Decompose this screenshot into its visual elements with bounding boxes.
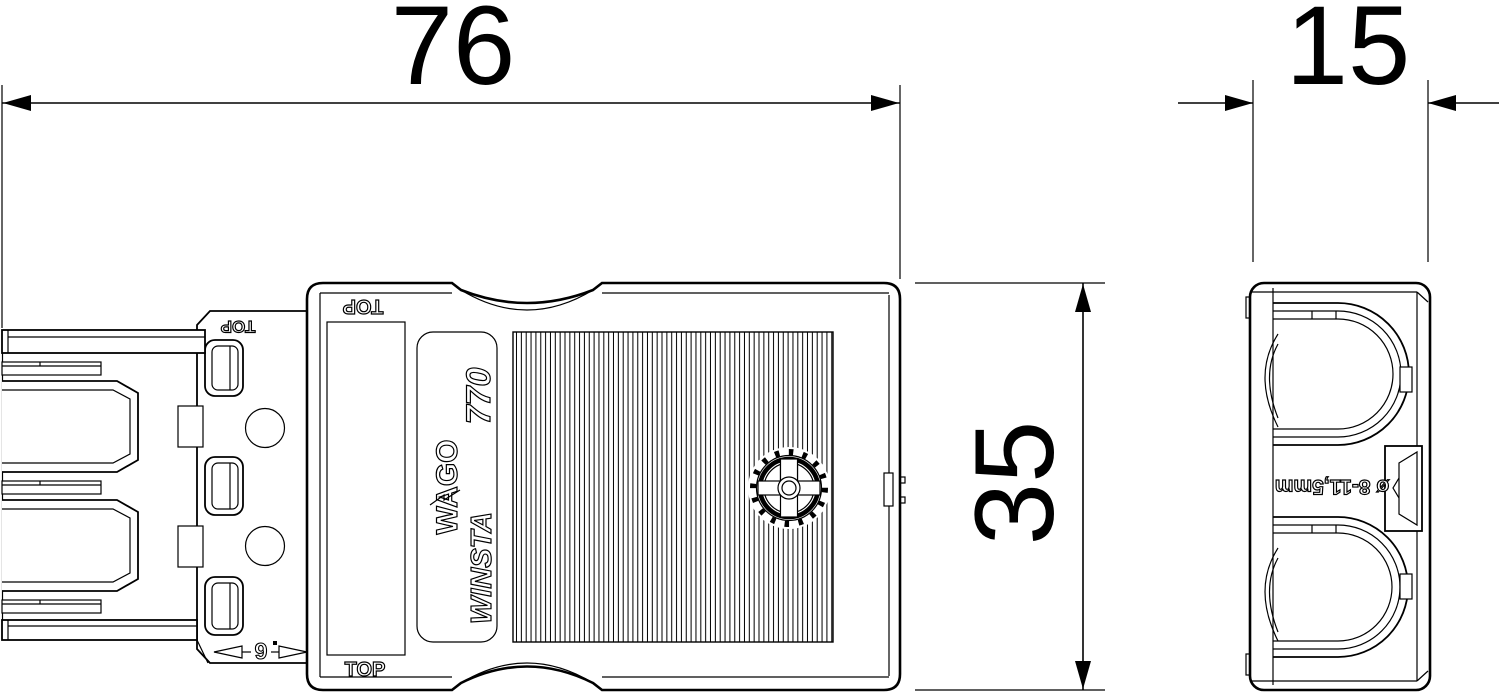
dim-width-value: 76 bbox=[391, 0, 516, 108]
top-rail bbox=[2, 330, 205, 353]
locking-screw bbox=[748, 447, 830, 529]
series-text: 770 bbox=[460, 368, 498, 425]
decimal-mark bbox=[273, 641, 277, 645]
arrowhead-up-icon bbox=[1075, 284, 1091, 312]
collar-top-marking: TOP bbox=[221, 317, 256, 336]
arrowhead-left-icon bbox=[1225, 95, 1253, 111]
wago-logo: WAGO bbox=[430, 440, 464, 535]
drawing-canvas: TOP bbox=[0, 0, 1500, 694]
end-view: ø 8-11,5mm bbox=[1246, 283, 1430, 690]
collar-opening-2 bbox=[205, 457, 243, 515]
round-hole-2 bbox=[246, 527, 285, 566]
housing-top-marking: TOP bbox=[343, 295, 384, 317]
family-text: WINSTA bbox=[466, 512, 498, 624]
dimension-depth-15: 15 bbox=[1178, 0, 1499, 262]
collar-opening-3 bbox=[205, 577, 243, 635]
collar-top-text: TOP bbox=[221, 317, 256, 336]
bottom-rail bbox=[2, 620, 208, 663]
cable-range-marking: ø 8-11,5mm bbox=[1275, 475, 1389, 498]
screw-center-outer bbox=[778, 477, 800, 499]
brand-text: WAGO bbox=[431, 440, 464, 535]
strain-relief-latch bbox=[1385, 446, 1422, 531]
arrowhead-right-icon bbox=[1428, 95, 1456, 111]
pin-body bbox=[2, 481, 101, 494]
insulator-block-1 bbox=[2, 381, 138, 472]
pin-body bbox=[2, 362, 101, 375]
contact-pin-3 bbox=[2, 600, 101, 613]
round-hole-1 bbox=[246, 409, 285, 448]
rail-body bbox=[2, 620, 197, 640]
block-outer bbox=[2, 500, 138, 591]
arrowhead-right-icon bbox=[871, 95, 899, 111]
block-outer bbox=[2, 381, 138, 472]
cable-range-text: ø 8-11,5mm bbox=[1275, 475, 1389, 498]
coding-window-1 bbox=[178, 406, 203, 447]
side-view: TOP bbox=[2, 283, 905, 690]
dim-engagement-value: 6 bbox=[255, 638, 268, 664]
insulator-block-2 bbox=[2, 500, 138, 591]
dimension-width-76: 76 bbox=[2, 0, 900, 328]
pin-body bbox=[2, 600, 101, 613]
family-name: WINSTA bbox=[466, 512, 498, 624]
technical-drawing: TOP bbox=[0, 0, 1500, 694]
collar-opening-1 bbox=[205, 340, 243, 396]
housing-top-text: TOP bbox=[343, 295, 384, 317]
rail-body bbox=[2, 330, 205, 353]
dim-depth-value: 15 bbox=[1286, 0, 1411, 108]
marking-strip bbox=[327, 322, 405, 655]
series-number: 770 bbox=[460, 368, 498, 425]
coding-window-2 bbox=[178, 526, 203, 567]
dimension-height-35: 35 bbox=[915, 283, 1105, 690]
dim-height-value: 35 bbox=[952, 421, 1077, 546]
contact-pin-2 bbox=[2, 481, 101, 494]
arrowhead-left-icon bbox=[3, 95, 31, 111]
contact-pin-1 bbox=[2, 362, 101, 375]
arrowhead-down-icon bbox=[1075, 661, 1091, 689]
housing-bottom-text: TOP bbox=[345, 659, 386, 681]
